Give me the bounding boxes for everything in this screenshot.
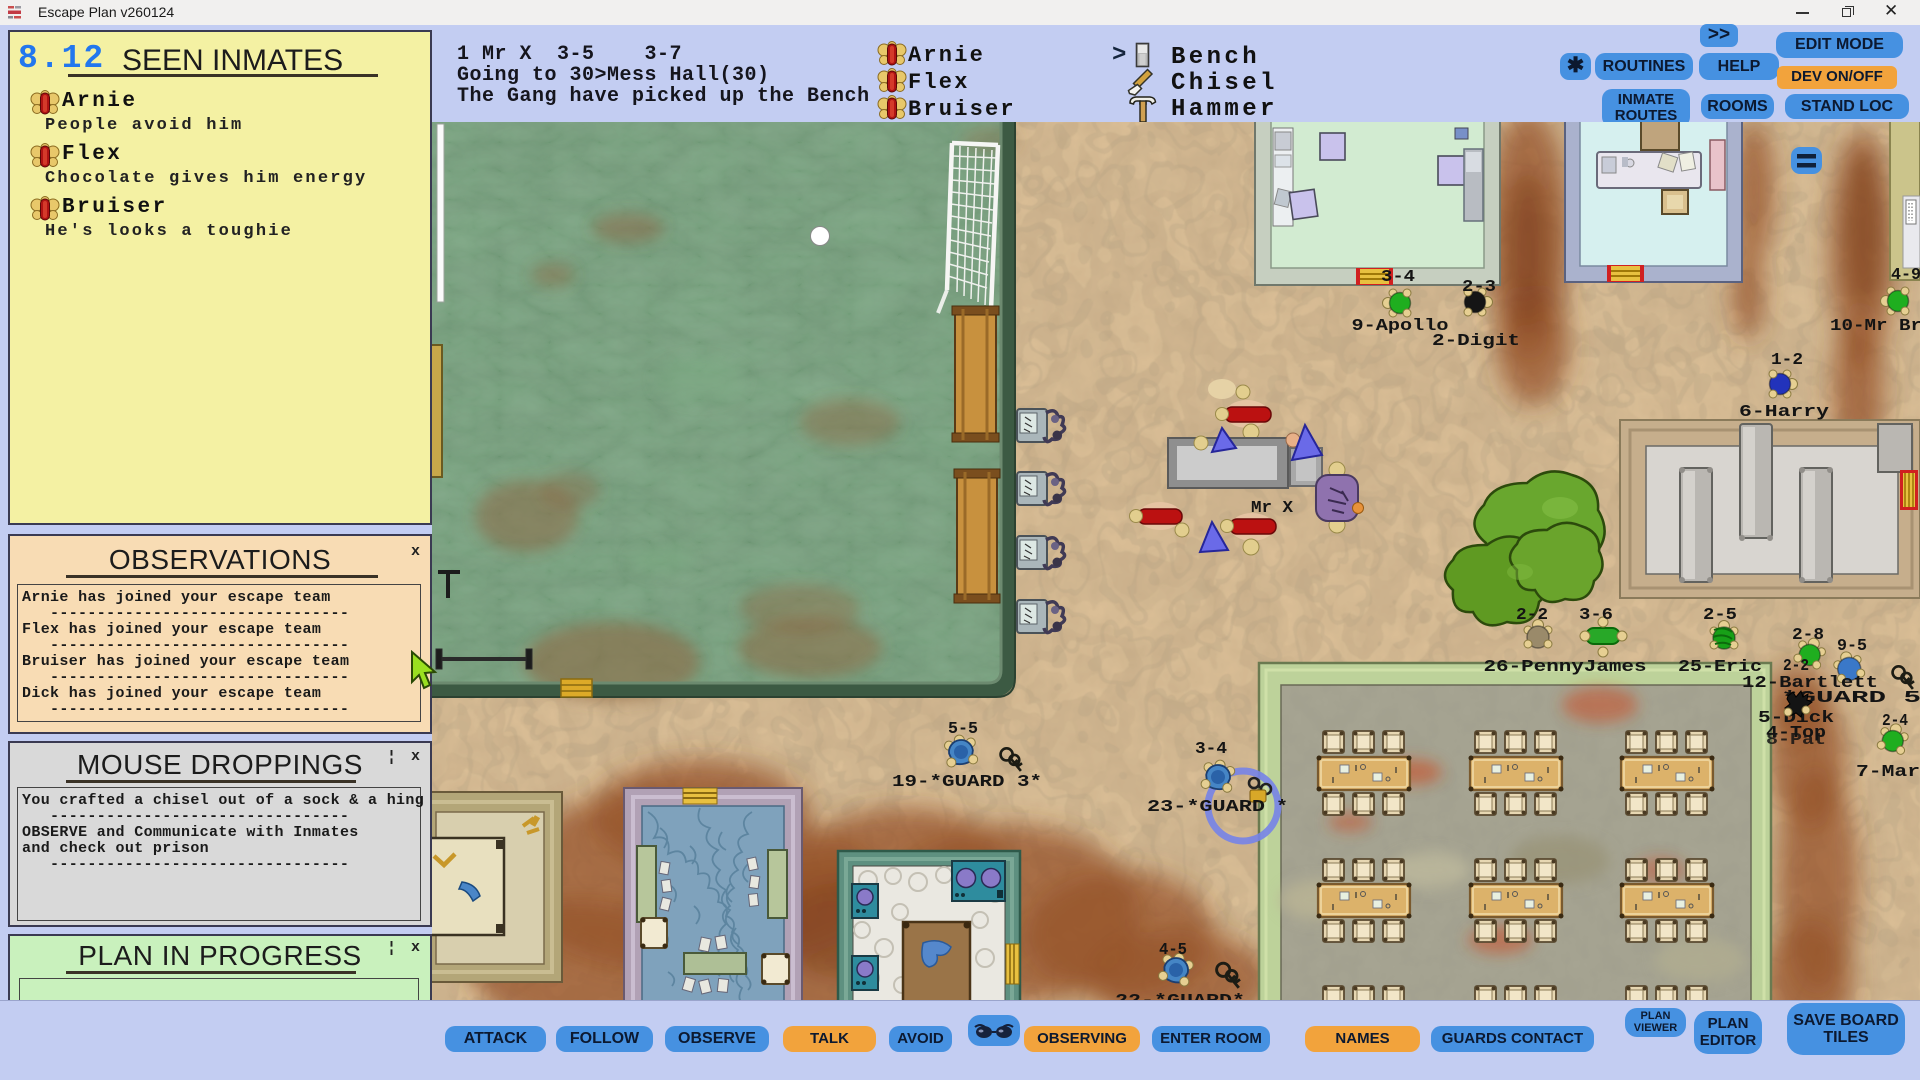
- svg-text:2-2: 2-2: [1783, 657, 1809, 676]
- svg-text:4-9: 4-9: [1891, 266, 1920, 285]
- svg-text:3-4: 3-4: [1381, 268, 1415, 287]
- svg-text:Mr X: Mr X: [1251, 499, 1294, 518]
- svg-text:2-2: 2-2: [1516, 606, 1548, 625]
- svg-text:3-6: 3-6: [1579, 606, 1613, 625]
- svg-text:19-*GUARD 3*: 19-*GUARD 3*: [892, 773, 1042, 792]
- svg-text:23-*GUARD: 23-*GUARD: [1147, 798, 1265, 817]
- svg-text:2-3: 2-3: [1462, 278, 1496, 297]
- svg-text:2-8: 2-8: [1792, 626, 1824, 645]
- svg-text:8-Pat: 8-Pat: [1766, 731, 1826, 750]
- svg-text:2-Digit: 2-Digit: [1432, 332, 1520, 351]
- svg-text:1-2: 1-2: [1771, 351, 1803, 370]
- svg-text:9-5: 9-5: [1837, 637, 1867, 656]
- svg-text:5-5: 5-5: [948, 720, 978, 739]
- svg-text:3-4: 3-4: [1195, 740, 1227, 759]
- svg-text:*: *: [1276, 798, 1288, 817]
- svg-text:10-Mr Br: 10-Mr Br: [1830, 317, 1920, 336]
- svg-text:4-5: 4-5: [1159, 941, 1187, 960]
- svg-text:2-5: 2-5: [1703, 606, 1737, 625]
- svg-text:7-Mar: 7-Mar: [1856, 763, 1920, 782]
- svg-text:26-PennyJames: 26-PennyJames: [1484, 658, 1647, 677]
- svg-text:6-Harry: 6-Harry: [1739, 403, 1829, 422]
